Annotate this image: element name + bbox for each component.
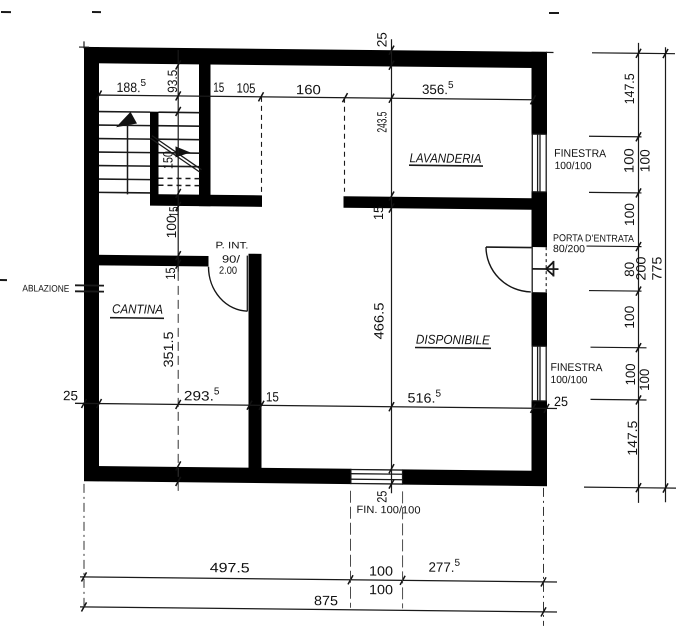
svg-text:277.: 277. [429,560,455,575]
svg-text:150: 150 [161,151,176,169]
svg-text:100/100: 100/100 [555,160,592,172]
svg-text:243.5: 243.5 [374,112,389,133]
svg-text:200: 200 [634,256,649,280]
svg-text:LAVANDERIA: LAVANDERIA [410,150,482,166]
svg-text:100: 100 [622,203,637,226]
svg-text:25: 25 [375,491,390,503]
svg-text:105: 105 [236,81,255,96]
svg-text:100: 100 [621,148,636,173]
svg-text:356.: 356. [422,82,448,97]
svg-text:100: 100 [623,363,638,385]
svg-text:100: 100 [622,306,637,329]
svg-text:25: 25 [554,394,568,409]
svg-text:100: 100 [164,215,179,238]
svg-text:80/200: 80/200 [553,243,585,255]
svg-text:466.5: 466.5 [372,302,387,339]
svg-text:5: 5 [141,78,147,89]
svg-text:516.: 516. [408,390,436,405]
svg-text:160: 160 [296,82,321,97]
svg-text:CANTINA: CANTINA [112,301,163,317]
svg-text:100: 100 [369,563,393,578]
svg-text:15: 15 [163,267,178,279]
svg-text:497.5: 497.5 [210,560,250,575]
svg-text:25: 25 [63,388,78,403]
svg-text:93.5: 93.5 [165,70,180,93]
svg-text:5: 5 [214,386,220,397]
svg-text:100: 100 [637,149,652,172]
svg-text:100/100: 100/100 [550,374,587,386]
svg-text:15: 15 [266,389,279,404]
svg-text:FINESTRA: FINESTRA [550,362,603,375]
svg-text:25: 25 [375,32,390,47]
svg-text:2.00: 2.00 [219,265,237,277]
svg-text:775: 775 [649,257,664,281]
svg-text:293.: 293. [184,388,214,403]
svg-text:147.5: 147.5 [625,421,640,456]
svg-text:FIN. 100/100: FIN. 100/100 [357,504,421,517]
svg-text:100: 100 [637,369,652,391]
svg-text:5: 5 [436,389,442,400]
svg-text:188.: 188. [117,80,141,95]
svg-text:ABLAZIONE: ABLAZIONE [22,283,69,295]
svg-text:875: 875 [314,593,338,608]
svg-text:351.5: 351.5 [161,331,176,367]
svg-text:5: 5 [455,558,461,569]
svg-text:DISPONIBILE: DISPONIBILE [416,332,490,348]
svg-text:15: 15 [213,80,224,95]
svg-text:15: 15 [371,206,386,220]
svg-text:100: 100 [369,582,393,597]
svg-text:P. INT.: P. INT. [216,240,249,251]
svg-text:147.5: 147.5 [622,73,637,104]
svg-text:FINESTRA: FINESTRA [554,148,607,161]
svg-text:5: 5 [448,80,454,91]
